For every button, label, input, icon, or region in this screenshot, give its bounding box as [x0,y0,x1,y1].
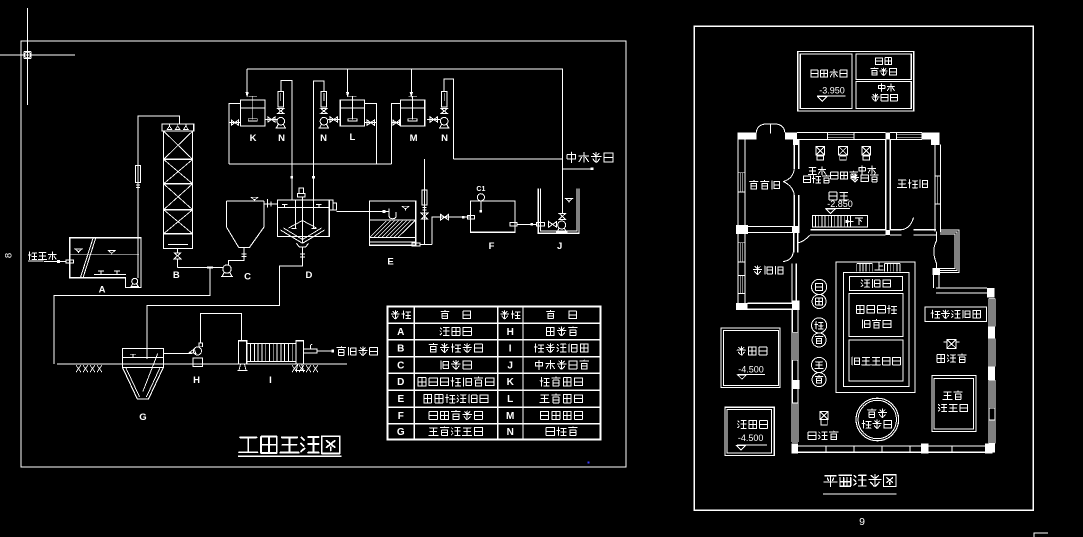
svg-text:9: 9 [859,516,865,528]
svg-text:H: H [193,375,200,386]
svg-text:L: L [507,394,513,405]
svg-text:-2.850: -2.850 [827,199,853,209]
svg-text:J: J [557,241,562,252]
svg-text:M: M [506,411,514,422]
svg-text:C1: C1 [476,186,485,193]
svg-text:J: J [507,360,513,371]
svg-text:E: E [397,394,404,405]
svg-text:A: A [397,327,404,338]
svg-text:D: D [397,377,404,388]
svg-text:8: 8 [4,253,15,258]
svg-text:L: L [349,132,355,143]
svg-text:N: N [441,133,448,144]
svg-text:G: G [139,412,146,423]
svg-text:N: N [320,133,327,144]
svg-text:K: K [507,377,515,388]
svg-text:H: H [507,327,514,338]
svg-text:C: C [397,360,404,371]
svg-text:D: D [305,270,312,281]
svg-text:E: E [387,257,393,268]
svg-text:-4.500: -4.500 [738,433,764,443]
svg-text:I: I [269,375,272,386]
svg-text:M: M [410,133,418,144]
svg-text:C: C [244,272,251,283]
svg-text:B: B [173,270,180,281]
svg-text:-3.950: -3.950 [819,86,845,96]
svg-text:N: N [507,427,514,438]
svg-text:G: G [397,427,405,438]
svg-text:F: F [489,241,495,252]
svg-text:B: B [397,344,404,355]
svg-text:F: F [398,411,404,422]
svg-text:N: N [278,133,285,144]
svg-text:A: A [99,285,106,296]
svg-text:K: K [250,133,257,144]
svg-text:I: I [509,344,512,355]
svg-text:-4.500: -4.500 [738,364,764,374]
